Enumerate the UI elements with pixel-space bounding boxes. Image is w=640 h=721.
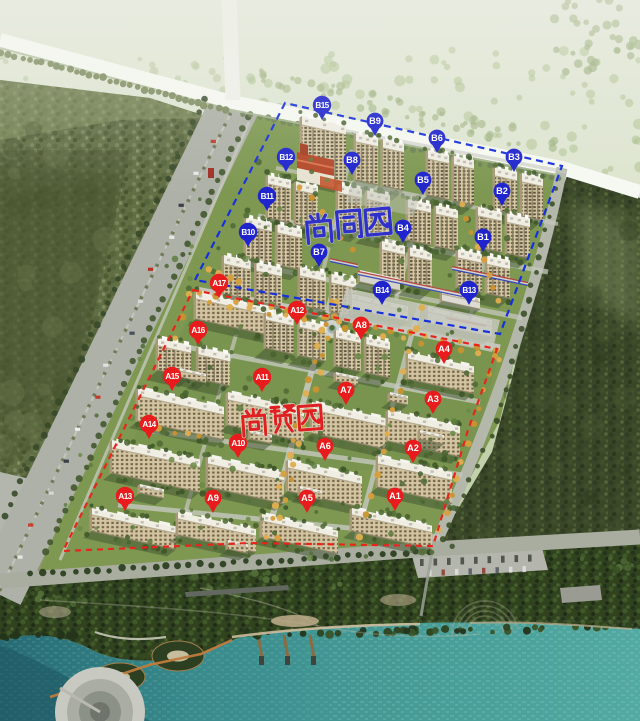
svg-text:A12: A12: [290, 306, 304, 315]
svg-text:A4: A4: [438, 344, 451, 354]
svg-text:B14: B14: [375, 286, 389, 295]
svg-text:A2: A2: [407, 443, 419, 453]
svg-text:A9: A9: [207, 493, 219, 503]
svg-text:A10: A10: [231, 439, 245, 448]
svg-text:A7: A7: [340, 385, 352, 395]
svg-text:A11: A11: [256, 373, 270, 382]
svg-text:B13: B13: [462, 286, 476, 295]
svg-text:A17: A17: [212, 279, 226, 288]
svg-text:A15: A15: [165, 372, 179, 381]
svg-text:A3: A3: [427, 394, 439, 404]
svg-text:A8: A8: [355, 320, 367, 330]
svg-text:A5: A5: [301, 493, 313, 503]
svg-text:A1: A1: [389, 491, 401, 501]
svg-text:A6: A6: [319, 441, 331, 451]
svg-text:A14: A14: [142, 420, 156, 429]
svg-text:A16: A16: [191, 326, 205, 335]
svg-text:A13: A13: [118, 492, 132, 501]
